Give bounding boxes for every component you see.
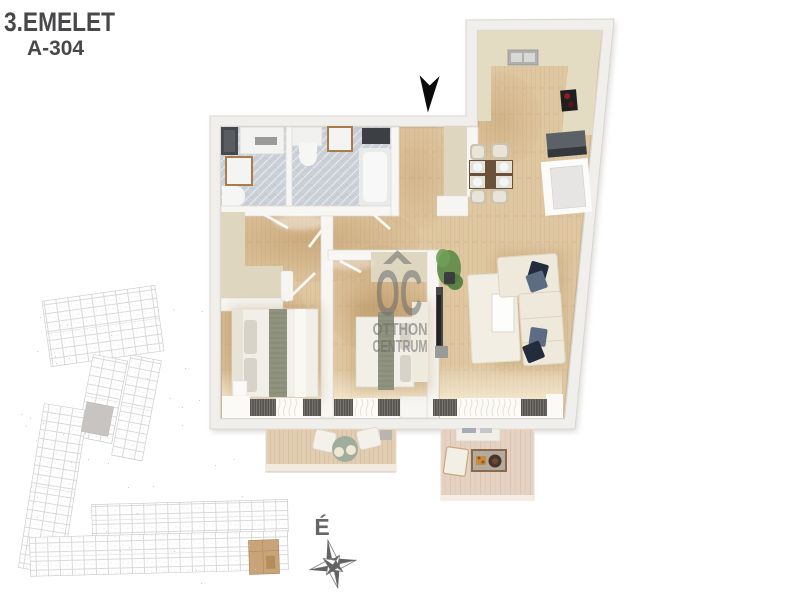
svg-text:A-304: A-304 [27, 37, 84, 60]
svg-text:CENTRUM: CENTRUM [373, 336, 428, 356]
svg-text:3.EMELET: 3.EMELET [4, 7, 115, 37]
svg-text:É: É [314, 513, 329, 540]
